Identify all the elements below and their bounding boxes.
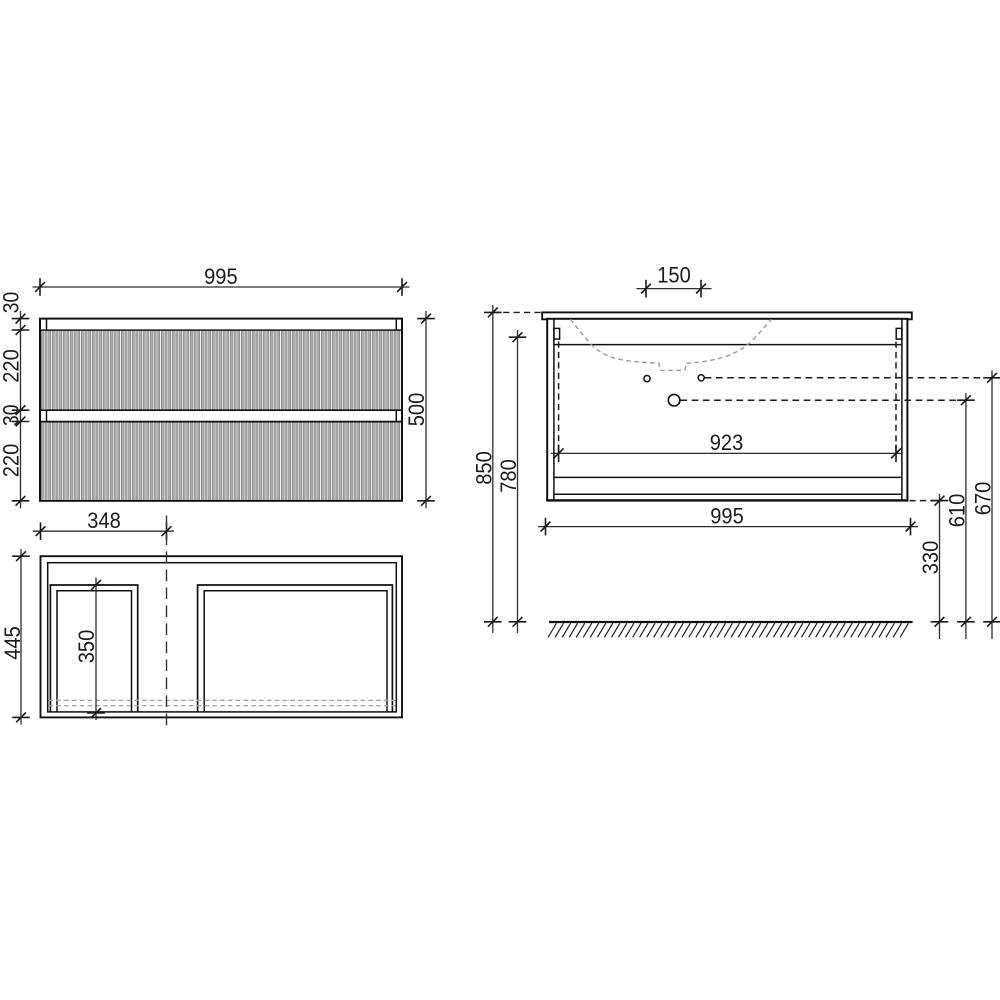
svg-text:350: 350 <box>74 630 99 664</box>
svg-text:500: 500 <box>404 393 429 427</box>
svg-text:850: 850 <box>471 451 496 485</box>
svg-text:330: 330 <box>918 541 943 575</box>
svg-text:995: 995 <box>204 264 238 289</box>
svg-text:610: 610 <box>944 494 969 528</box>
svg-text:30: 30 <box>0 405 24 427</box>
svg-text:220: 220 <box>0 349 24 383</box>
svg-text:348: 348 <box>87 508 121 533</box>
svg-text:445: 445 <box>0 626 25 660</box>
svg-text:995: 995 <box>710 503 744 528</box>
svg-text:923: 923 <box>710 430 744 455</box>
svg-text:220: 220 <box>0 444 24 478</box>
svg-text:670: 670 <box>971 482 996 516</box>
svg-text:780: 780 <box>496 459 521 493</box>
svg-text:150: 150 <box>657 262 691 287</box>
svg-text:30: 30 <box>0 292 24 314</box>
